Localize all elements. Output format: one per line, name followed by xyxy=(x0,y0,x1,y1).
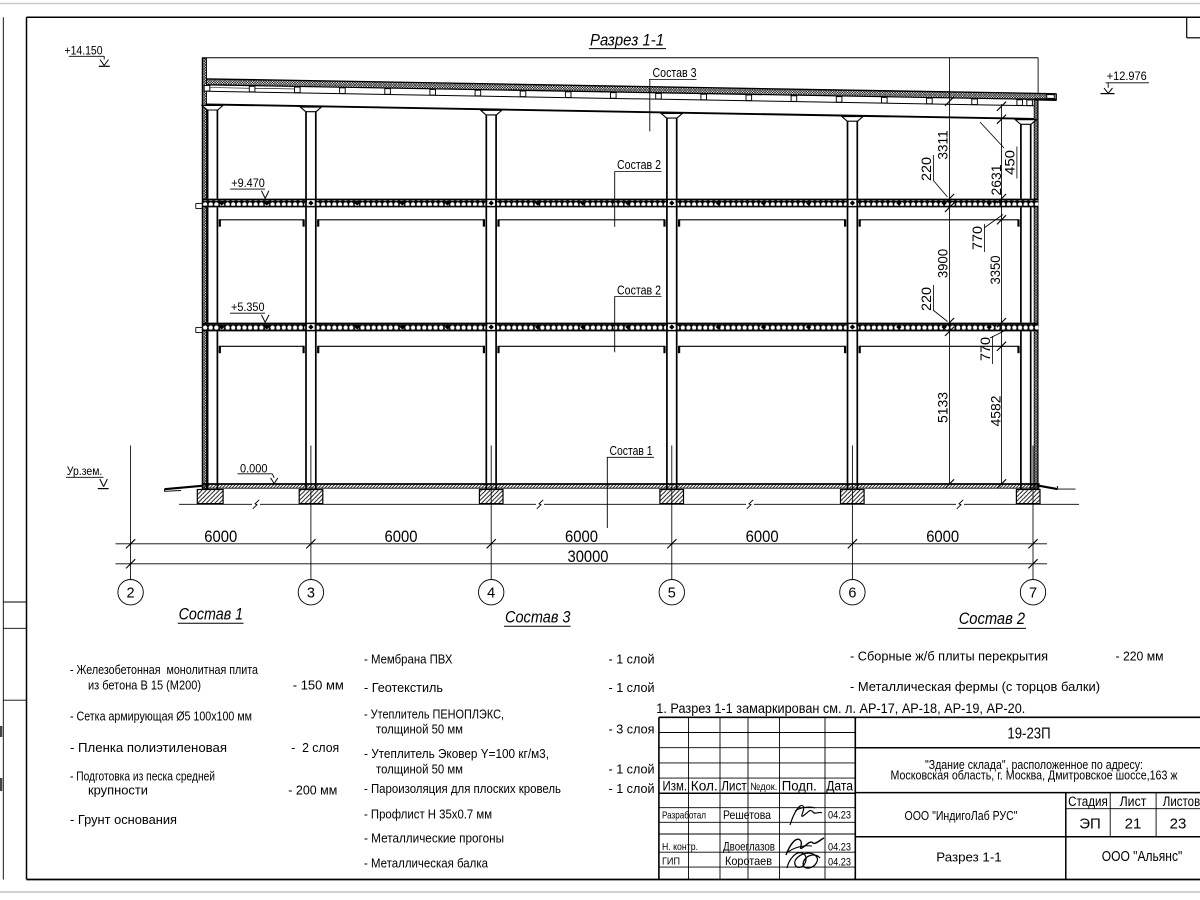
svg-text:Подп.: Подп. xyxy=(782,779,817,794)
svg-text:- Сборные ж/б плиты перекрытия: - Сборные ж/б плиты перекрытия xyxy=(850,649,1048,664)
svg-text:770: 770 xyxy=(969,226,985,250)
svg-text:- 1 слой: - 1 слой xyxy=(609,680,655,695)
svg-text:- Металлические прогоны: - Металлические прогоны xyxy=(364,831,504,846)
svg-text:Состав 1: Состав 1 xyxy=(610,443,653,458)
svg-text:+9.470: +9.470 xyxy=(231,177,265,190)
svg-text:3: 3 xyxy=(307,585,315,601)
svg-text:04.23: 04.23 xyxy=(828,856,851,868)
svg-text:- Геотекстиль: - Геотекстиль xyxy=(364,680,443,695)
svg-text:- 2 слоя: - 2 слоя xyxy=(291,740,339,755)
svg-text:3900: 3900 xyxy=(935,249,951,278)
svg-text:770: 770 xyxy=(977,337,993,361)
svg-text:- Грунт основания: - Грунт основания xyxy=(70,812,177,827)
svg-text:ЭП: ЭП xyxy=(1079,816,1101,833)
svg-text:- Сетка армирующая Ø5 100х100: - Сетка армирующая Ø5 100х100 мм xyxy=(70,709,252,724)
svg-text:- Металлическая фермы (с торцо: - Металлическая фермы (с торцов балки) xyxy=(850,679,1100,694)
svg-text:Листов: Листов xyxy=(1163,794,1200,809)
svg-text:- Металлическая балка: - Металлическая балка xyxy=(364,856,489,871)
svg-text:4: 4 xyxy=(487,585,495,601)
svg-text:- Мембрана ПВХ: - Мембрана ПВХ xyxy=(364,652,453,667)
svg-text:Состав 1: Состав 1 xyxy=(179,605,244,623)
svg-text:Кол.: Кол. xyxy=(691,779,718,794)
svg-text:- 1 слой: - 1 слой xyxy=(609,781,655,796)
svg-text:220: 220 xyxy=(918,287,934,311)
svg-text:Двоеглазов: Двоеглазов xyxy=(723,840,775,854)
svg-text:крупности: крупности xyxy=(88,783,148,798)
svg-text:21: 21 xyxy=(1125,816,1142,833)
svg-text:3350: 3350 xyxy=(987,255,1003,284)
svg-text:Дата: Дата xyxy=(826,779,853,794)
svg-text:+14.150: +14.150 xyxy=(65,44,103,57)
svg-text:5133: 5133 xyxy=(935,392,951,423)
svg-text:из бетона В 15 (М200): из бетона В 15 (М200) xyxy=(88,678,201,693)
svg-text:6000: 6000 xyxy=(385,528,418,546)
svg-text:220: 220 xyxy=(918,157,934,181)
svg-text:Лист: Лист xyxy=(721,779,747,794)
svg-text:2631: 2631 xyxy=(988,164,1004,195)
svg-text:+12.976: +12.976 xyxy=(1107,70,1147,83)
svg-text:- Утеплитель Эковер Y=100 кг/м: - Утеплитель Эковер Y=100 кг/м3, xyxy=(364,746,549,761)
svg-text:- 1 слой: - 1 слой xyxy=(609,652,655,667)
svg-text:- Профлист Н 35х0.7 мм: - Профлист Н 35х0.7 мм xyxy=(364,807,492,822)
svg-text:30000: 30000 xyxy=(568,548,609,566)
svg-text:Коротаев: Коротаев xyxy=(725,854,772,868)
svg-text:Разрез 1-1: Разрез 1-1 xyxy=(936,851,1001,865)
svg-text:№док.: №док. xyxy=(750,781,777,793)
svg-text:6000: 6000 xyxy=(926,528,959,546)
svg-text:04.23: 04.23 xyxy=(828,810,851,822)
svg-text:Н. контр.: Н. контр. xyxy=(662,841,698,853)
svg-text:Лист: Лист xyxy=(1120,794,1147,809)
svg-text:- 200 мм: - 200 мм xyxy=(288,783,337,798)
svg-text:6000: 6000 xyxy=(565,528,598,546)
svg-text:5: 5 xyxy=(668,585,676,601)
svg-text:- Пленка полиэтиленовая: - Пленка полиэтиленовая xyxy=(70,740,227,755)
svg-text:толщиной 50 мм: толщиной 50 мм xyxy=(376,722,463,737)
svg-text:19-23П: 19-23П xyxy=(1007,726,1050,743)
svg-text:Состав 2: Состав 2 xyxy=(617,282,661,297)
svg-text:- Подготовка из песка средней: - Подготовка из песка средней xyxy=(70,768,215,783)
svg-text:- 1 слой: - 1 слой xyxy=(609,761,655,776)
svg-text:6000: 6000 xyxy=(746,528,779,546)
svg-text:Изм.: Изм. xyxy=(663,779,688,794)
svg-text:Состав 3: Состав 3 xyxy=(653,65,697,80)
svg-text:7: 7 xyxy=(1029,585,1037,601)
svg-text:- 150 мм: - 150 мм xyxy=(293,678,344,693)
svg-text:1. Разрез 1-1 замаркирован см.: 1. Разрез 1-1 замаркирован см. л. АР-17,… xyxy=(656,701,1025,716)
svg-text:Состав 2: Состав 2 xyxy=(617,157,661,172)
svg-text:Разработал: Разработал xyxy=(662,810,706,822)
svg-text:Решетова: Решетова xyxy=(723,808,771,822)
svg-text:4582: 4582 xyxy=(988,395,1004,426)
svg-text:- Железобетонная монолитная п: - Железобетонная монолитная плита xyxy=(70,662,259,677)
svg-text:04.23: 04.23 xyxy=(828,842,851,854)
svg-text:- Пароизоляция для плоских кро: - Пароизоляция для плоских кровель xyxy=(364,781,561,796)
svg-text:Московская область, г. Москва,: Московская область, г. Москва, Дмитровск… xyxy=(891,769,1179,783)
svg-text:Состав 2: Состав 2 xyxy=(959,610,1025,628)
svg-text:- Утеплитель ПЕНОПЛЭКС,: - Утеплитель ПЕНОПЛЭКС, xyxy=(364,707,504,722)
svg-text:23: 23 xyxy=(1170,816,1187,833)
svg-text:- 3 слоя: - 3 слоя xyxy=(609,722,655,737)
svg-text:Разрез 1-1: Разрез 1-1 xyxy=(590,32,664,50)
svg-text:3311: 3311 xyxy=(935,130,951,160)
svg-text:ООО "ИндигоЛаб РУС": ООО "ИндигоЛаб РУС" xyxy=(905,809,1018,823)
svg-text:450: 450 xyxy=(1002,150,1018,175)
svg-text:6: 6 xyxy=(848,585,856,601)
svg-text:толщиной 50 мм: толщиной 50 мм xyxy=(376,761,463,776)
svg-text:ООО "Альянс": ООО "Альянс" xyxy=(1102,848,1183,865)
svg-text:+5.350: +5.350 xyxy=(231,301,265,314)
svg-text:Состав 3: Состав 3 xyxy=(505,609,571,627)
svg-text:2: 2 xyxy=(127,585,135,601)
svg-text:ГИП: ГИП xyxy=(662,855,680,867)
svg-text:Стадия: Стадия xyxy=(1068,794,1108,809)
svg-text:6000: 6000 xyxy=(204,528,237,546)
svg-text:Ур.зем.: Ур.зем. xyxy=(67,465,103,478)
svg-text:- 220 мм: - 220 мм xyxy=(1116,649,1164,664)
